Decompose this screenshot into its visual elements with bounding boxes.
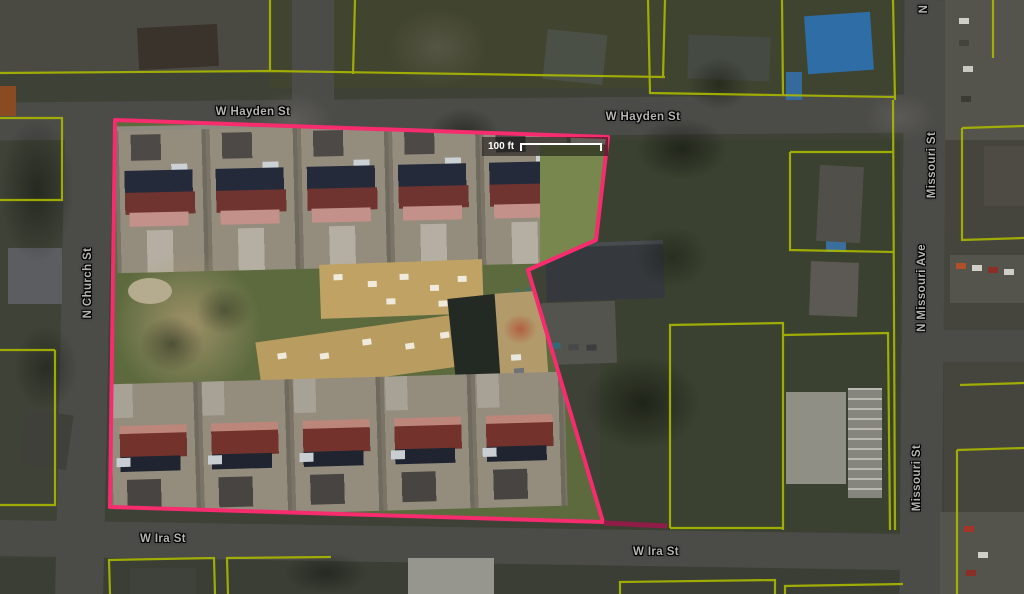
selection-layer <box>0 0 1024 594</box>
scale-bar-rule <box>520 143 602 151</box>
street-label-w-hayden-st-east: W Hayden St <box>606 111 681 123</box>
street-label-w-ira-st-west: W Ira St <box>140 533 186 545</box>
street-label-w-ira-st-east: W Ira St <box>633 546 679 558</box>
street-label-n-church-st: N Church St <box>82 248 94 319</box>
street-label-missouri-st-south: Missouri St <box>911 445 923 511</box>
street-label-missouri-st-north: Missouri St <box>926 132 938 198</box>
selected-parcel-outline[interactable] <box>110 120 608 522</box>
scale-bar: 100 ft <box>482 137 608 156</box>
scale-bar-label: 100 ft <box>488 142 514 152</box>
street-label-n-missouri-ave: N Missouri Ave <box>916 244 928 332</box>
street-label-n-partial-top: N <box>918 5 930 14</box>
aerial-map-canvas: 100 ft W Hayden St W Hayden St W Ira St … <box>0 0 1024 594</box>
selected-parcel-outline-dimmed-segment <box>604 523 667 526</box>
street-label-w-hayden-st-west: W Hayden St <box>216 106 291 118</box>
